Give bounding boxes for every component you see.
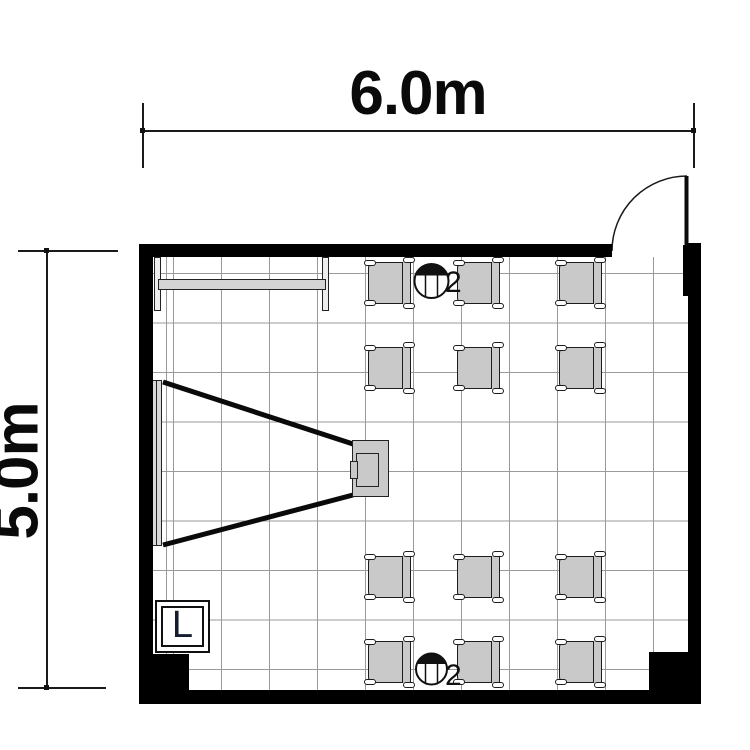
chair-leg	[364, 594, 376, 600]
chair-leg	[453, 345, 465, 351]
chair	[557, 553, 607, 601]
dimension-marker	[44, 685, 49, 690]
wall-door-hinge-block	[683, 245, 701, 296]
projector-lens	[350, 461, 358, 479]
room-height-label: 5.0m	[0, 402, 53, 539]
chair-leg	[492, 342, 504, 348]
chair-leg	[453, 594, 465, 600]
light-symbol-box: L	[155, 600, 210, 653]
chair-backrest	[402, 556, 411, 598]
chair	[366, 553, 416, 601]
chair	[455, 344, 505, 392]
chair-leg	[594, 257, 606, 263]
chair-leg	[594, 682, 606, 688]
chair-backrest	[491, 347, 500, 389]
chair-leg	[555, 385, 567, 391]
chair-leg	[364, 639, 376, 645]
chair-leg	[403, 303, 415, 309]
chair-leg	[364, 300, 376, 306]
left-dimension-tick-top	[18, 250, 118, 252]
chair-leg	[453, 300, 465, 306]
wall-corner-block-bottom-right	[649, 652, 701, 694]
chair-leg	[492, 551, 504, 557]
chair-leg	[555, 345, 567, 351]
wall-left	[139, 244, 153, 704]
chair-backrest	[491, 262, 500, 304]
chair-leg	[403, 388, 415, 394]
wall-top	[140, 244, 612, 257]
chair	[557, 259, 607, 307]
floor-plan-page: { "page": { "background": "#ffffff" }, "…	[0, 0, 750, 750]
chair-leg	[594, 597, 606, 603]
chair-leg	[403, 597, 415, 603]
chair-leg	[453, 554, 465, 560]
chair-backrest	[593, 262, 602, 304]
chair-leg	[364, 260, 376, 266]
chair-leg	[403, 342, 415, 348]
chair-leg	[555, 300, 567, 306]
chair-leg	[555, 679, 567, 685]
projector-inner	[356, 453, 379, 487]
chair-leg	[555, 554, 567, 560]
chair-backrest	[593, 347, 602, 389]
chair-leg	[555, 639, 567, 645]
chair	[455, 553, 505, 601]
chair-backrest	[402, 347, 411, 389]
top-dimension-tick-right	[693, 103, 695, 168]
wall-bottom	[139, 690, 701, 704]
chair	[366, 638, 416, 686]
chair-leg	[492, 636, 504, 642]
chair-leg	[555, 260, 567, 266]
left-dimension-tick-bottom	[18, 687, 106, 689]
chair-leg	[492, 682, 504, 688]
wall-right	[688, 243, 701, 704]
wall-corner-block-bottom-left	[139, 654, 189, 694]
chair	[455, 259, 505, 307]
chair-leg	[364, 554, 376, 560]
chair-leg	[492, 257, 504, 263]
chair	[557, 638, 607, 686]
screen-detail-line	[156, 381, 157, 545]
chair-leg	[594, 388, 606, 394]
chair-backrest	[491, 556, 500, 598]
door-arc	[612, 176, 687, 251]
door-swing	[612, 176, 687, 252]
chair-leg	[403, 257, 415, 263]
room-floor-grid	[153, 257, 688, 690]
room-width-label: 6.0m	[349, 58, 486, 129]
chair-leg	[364, 345, 376, 351]
top-dimension-line	[143, 130, 694, 132]
light-symbol-label: L	[172, 606, 193, 644]
dimension-marker	[140, 128, 145, 133]
chair-leg	[492, 388, 504, 394]
chair	[366, 344, 416, 392]
chair-leg	[555, 594, 567, 600]
dimension-marker	[691, 128, 696, 133]
chair-leg	[492, 303, 504, 309]
chair-leg	[403, 636, 415, 642]
chair-backrest	[402, 262, 411, 304]
chair-leg	[594, 303, 606, 309]
chair-leg	[594, 551, 606, 557]
chair-backrest	[593, 556, 602, 598]
chair	[455, 638, 505, 686]
chair-leg	[453, 385, 465, 391]
top-dimension-tick-left	[142, 103, 144, 168]
chair-leg	[492, 597, 504, 603]
chair	[557, 344, 607, 392]
chair-backrest	[491, 641, 500, 683]
chair-leg	[594, 342, 606, 348]
light-symbol-inner-box: L	[161, 606, 204, 647]
chair	[366, 259, 416, 307]
outlet-count-bottom: 2	[445, 661, 462, 691]
chair-leg	[403, 551, 415, 557]
chair-backrest	[593, 641, 602, 683]
chair-leg	[364, 385, 376, 391]
chair-leg	[364, 679, 376, 685]
dimension-marker	[44, 248, 49, 253]
chair-leg	[594, 636, 606, 642]
shelf-bar	[158, 279, 326, 290]
chair-leg	[453, 639, 465, 645]
outlet-count-top: 2	[445, 268, 462, 298]
chair-leg	[403, 682, 415, 688]
chair-backrest	[402, 641, 411, 683]
